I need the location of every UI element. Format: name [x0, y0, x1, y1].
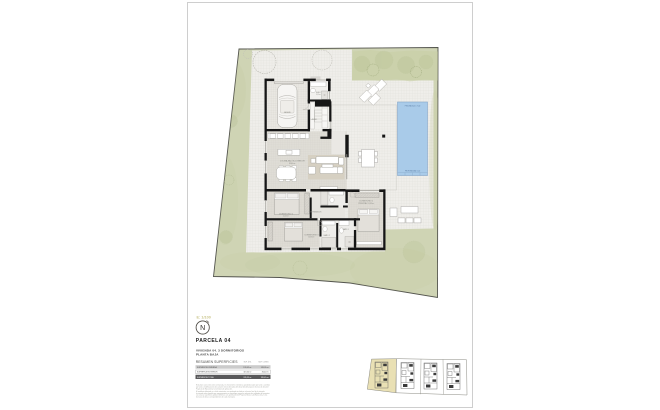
svg-text:RESUMEN SUPERFICIES: RESUMEN SUPERFICIES [196, 360, 239, 364]
svg-text:DISTRIBUIDOR: DISTRIBUIDOR [309, 211, 322, 213]
svg-text:185,45 m²: 185,45 m² [261, 376, 269, 379]
svg-text:245,55 m²: 245,55 m² [243, 376, 251, 379]
svg-text:35,60 m²: 35,60 m² [289, 162, 296, 165]
svg-text:BAÑO 1: BAÑO 1 [343, 228, 349, 231]
svg-text:BAÑO 2: BAÑO 2 [324, 234, 330, 237]
svg-text:36,40 m²: 36,40 m² [262, 371, 269, 374]
svg-text:PARCELA 04: PARCELA 04 [196, 338, 231, 344]
svg-text:PLANTA BAJA: PLANTA BAJA [196, 353, 219, 357]
svg-text:PRINCIPAL 13,95 m²: PRINCIPAL 13,95 m² [358, 202, 374, 205]
svg-text:DORMITORIO 3: DORMITORIO 3 [305, 234, 319, 236]
svg-text:E: 1/100: E: 1/100 [197, 316, 211, 320]
svg-text:SUPERFICIE TOTAL: SUPERFICIE TOTAL [197, 376, 214, 379]
svg-text:SUP. ÚTIL: SUP. ÚTIL [244, 361, 252, 364]
svg-text:SUPERFICIE EXTERIOR: SUPERFICIE EXTERIOR [197, 372, 218, 374]
svg-text:GARAJE: GARAJE [284, 111, 292, 114]
svg-text:149,05 m²: 149,05 m² [261, 366, 269, 369]
svg-text:119,50 m²: 119,50 m² [244, 371, 252, 374]
svg-text:126,05 m²: 126,05 m² [243, 366, 251, 369]
svg-text:DORMITORIO 2: DORMITORIO 2 [279, 213, 293, 215]
svg-text:SUP. CONST.: SUP. CONST. [258, 362, 269, 364]
svg-text:N: N [200, 325, 205, 332]
svg-text:SUPERFICIE VIVIENDA: SUPERFICIE VIVIENDA [197, 366, 217, 369]
svg-text:PISCINA 3,00 x 7,00: PISCINA 3,00 x 7,00 [405, 105, 421, 108]
